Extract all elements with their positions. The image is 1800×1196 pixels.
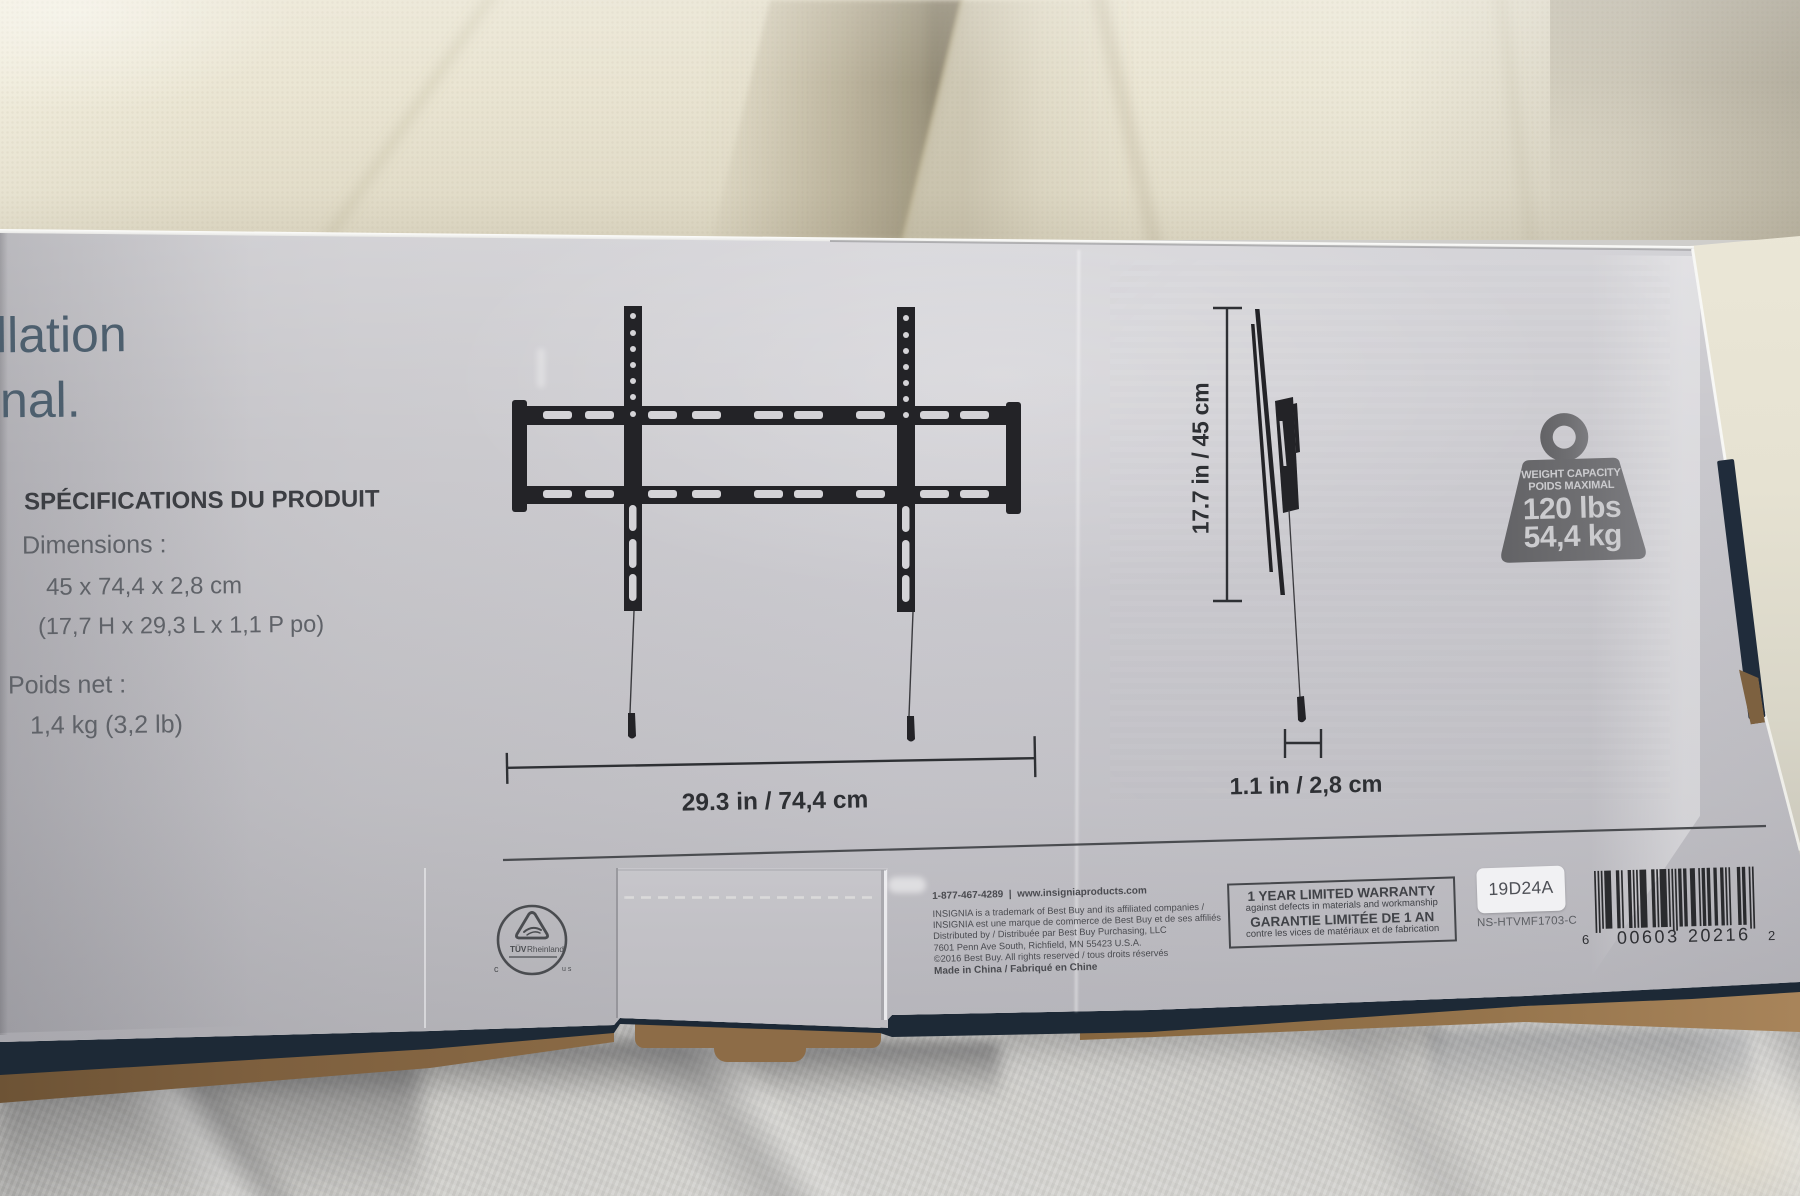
svg-text:TÜV: TÜV [510, 944, 527, 954]
svg-text:c: c [494, 964, 499, 974]
svg-text:Rheinland: Rheinland [527, 945, 564, 954]
svg-text:u s: u s [562, 966, 572, 973]
